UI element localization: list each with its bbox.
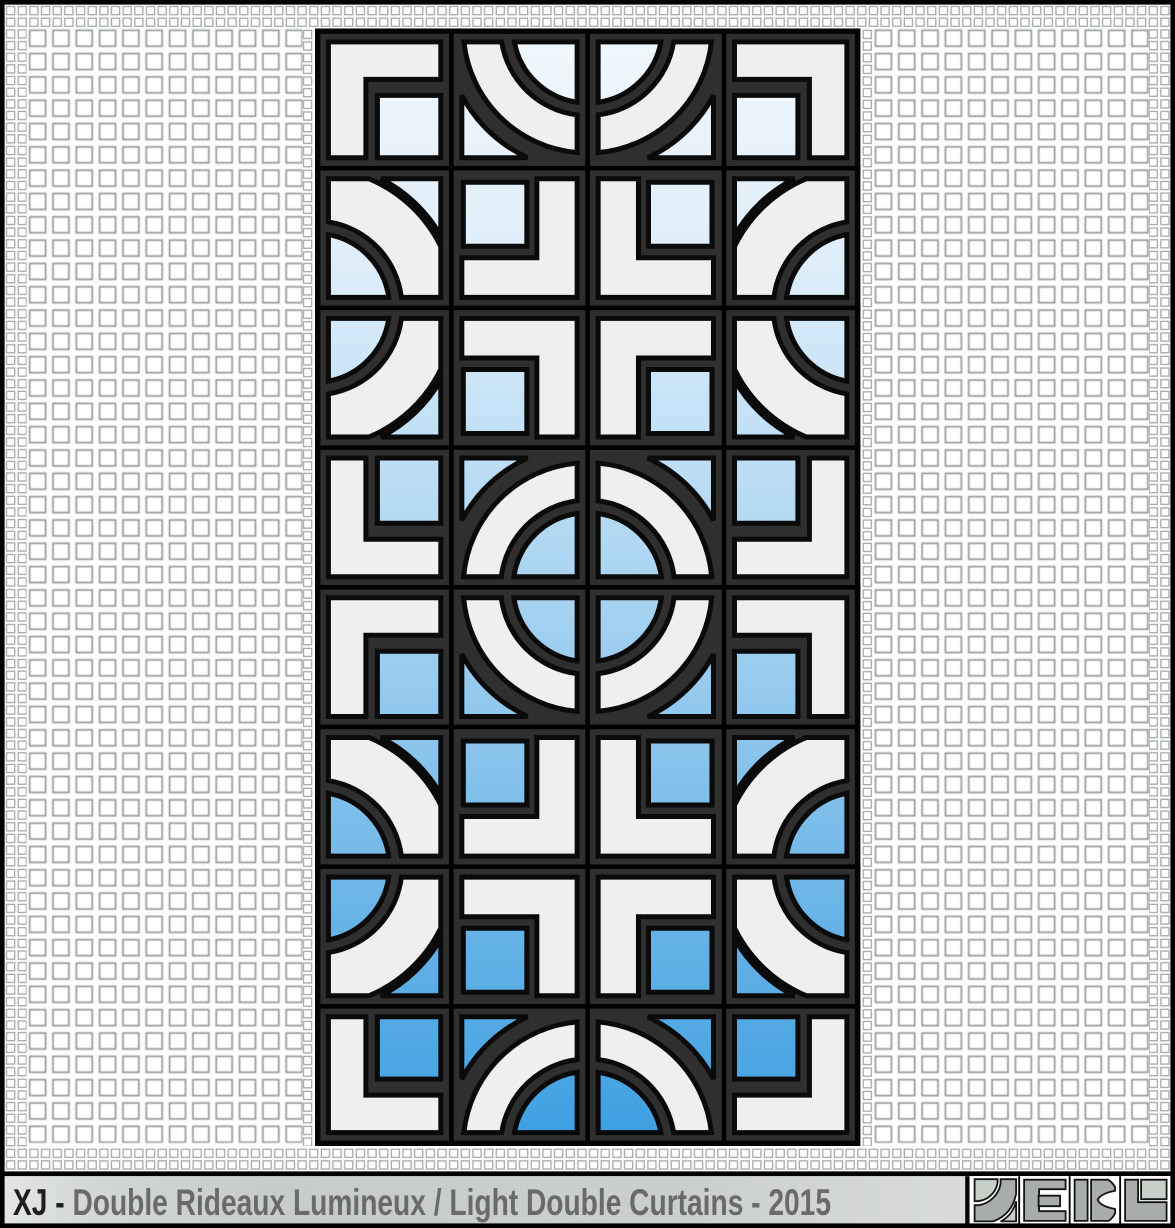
svg-text:XJ - Double Rideaux Lumineux /: XJ - Double Rideaux Lumineux / Light Dou… — [13, 1182, 831, 1223]
